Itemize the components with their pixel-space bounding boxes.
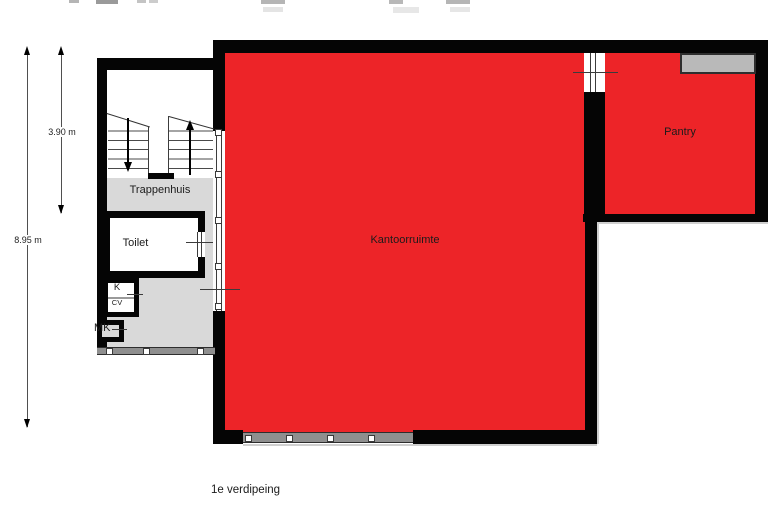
wall-shadow [585, 222, 768, 224]
stair-edge [148, 127, 149, 175]
window-mullion [215, 217, 222, 224]
dimension-arrow-up-icon [58, 46, 64, 55]
window-tick [200, 289, 240, 290]
door-jamb-line [197, 232, 198, 257]
cropped-text-fragment [96, 0, 118, 4]
stair-arrow-up-icon [186, 120, 194, 130]
window-mullion [215, 129, 222, 136]
stair-arrow-down [127, 118, 129, 164]
cropped-text-fragment [149, 0, 158, 3]
dimension-arrow-down-icon [58, 205, 64, 214]
wall [585, 214, 597, 444]
closet-cv-label: CV [103, 299, 131, 308]
wall [213, 40, 768, 53]
wall-shadow [243, 444, 597, 446]
wall [97, 58, 213, 70]
dimension-label-stair: 3.90 m [41, 127, 83, 137]
cropped-text-fragment [69, 0, 79, 3]
window-mullion [106, 348, 113, 355]
window-mullion [197, 348, 204, 355]
window-tick [573, 72, 618, 73]
wall [583, 214, 768, 222]
wall-shadow [597, 216, 599, 444]
wall [213, 53, 225, 131]
cropped-text-fragment [446, 0, 470, 4]
window-mullion [215, 171, 222, 178]
cropped-text-fragment [389, 0, 403, 4]
wall [148, 173, 174, 179]
window-mullion [215, 303, 222, 310]
wall [755, 40, 768, 222]
door-tick [127, 294, 143, 295]
dimension-arrow-up-icon [24, 46, 30, 55]
window-mullion [215, 263, 222, 270]
door-tick [112, 329, 127, 330]
toilet-label: Toilet [108, 237, 163, 250]
stair-arrow-up [189, 128, 191, 175]
closet-k-label: K [103, 283, 131, 294]
wall [213, 430, 243, 444]
dimension-arrow-down-icon [24, 419, 30, 428]
closet-mk-label: MK [94, 322, 111, 335]
stairwell-label: Trappenhuis [107, 184, 213, 197]
cropped-text-fragment [450, 7, 470, 12]
stair-arrow-down-icon [124, 162, 132, 172]
cropped-text-fragment [261, 0, 285, 4]
pantry-label: Pantry [605, 126, 755, 139]
window-mullion [368, 435, 375, 442]
cropped-text-fragment [393, 7, 419, 13]
wall [413, 430, 597, 444]
door-tick [186, 242, 213, 243]
pantry-counter [680, 53, 756, 74]
window-mullion [245, 435, 252, 442]
wall [213, 311, 225, 444]
floor-caption: 1e verdipeing [211, 484, 280, 497]
cropped-text-fragment [263, 7, 283, 12]
window-mullion [327, 435, 334, 442]
door-jamb-line [201, 232, 202, 257]
window-mullion [286, 435, 293, 442]
stair-edge [168, 116, 169, 175]
office-label: Kantoorruimte [225, 234, 585, 247]
window-mullion [143, 348, 150, 355]
cropped-text-fragment [137, 0, 146, 3]
dimension-label-total: 8.95 m [7, 235, 49, 245]
floor-plan: 8.95 m 3.90 m [0, 0, 780, 520]
